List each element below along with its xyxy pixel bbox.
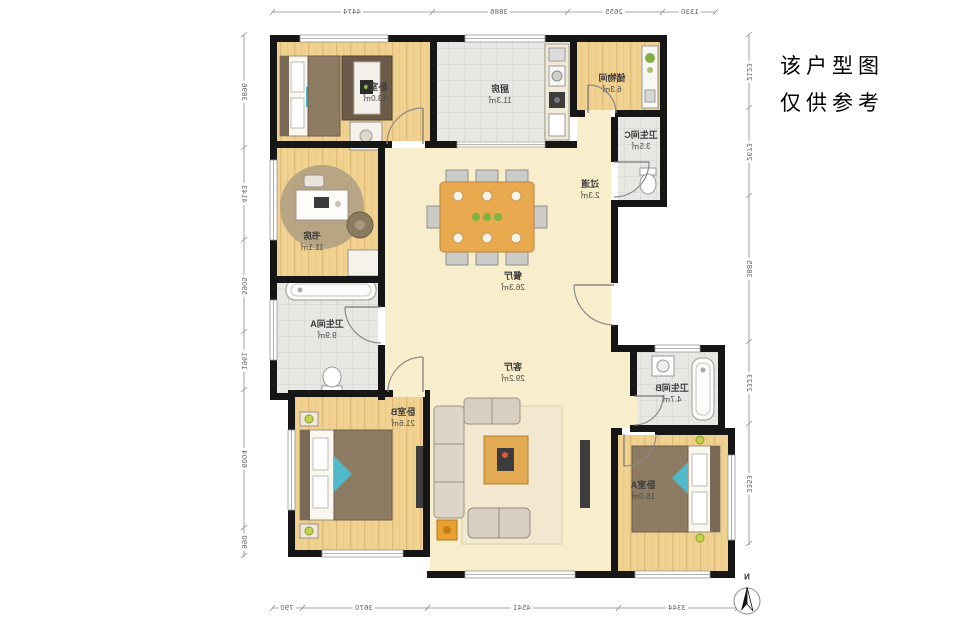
room-label-bedroomA: 卧室A15.0㎡ <box>631 480 656 502</box>
room-label-bathA: 卫生间A9.9㎡ <box>310 319 344 341</box>
dim-right-1: 2123 <box>745 61 753 83</box>
floorplan-canvas: 卧室C13.0㎡ 厨房11.3㎡ 储物间6.3㎡ 卫生间C3.5㎡ 过道2.3㎡… <box>0 0 969 623</box>
room-label-bedroomC: 卧室C13.0㎡ <box>363 82 388 104</box>
dim-right-4: 2323 <box>745 372 753 394</box>
reference-note-line2: 仅供参考 <box>780 85 940 122</box>
north-label: N <box>744 573 750 582</box>
room-label-dining: 餐厅26.3㎡ <box>501 271 525 293</box>
dim-left-2: 4143 <box>240 183 248 205</box>
dim-bottom-4: 3344 <box>666 604 688 612</box>
dim-top-2: 3886 <box>488 8 510 16</box>
room-label-storage: 储物间6.3㎡ <box>598 73 625 95</box>
dim-top-4: 1330 <box>679 8 701 16</box>
dim-bottom-2: 3670 <box>353 604 375 612</box>
room-label-living: 客厅29.2㎡ <box>501 362 525 384</box>
room-label-kitchen: 厨房11.3㎡ <box>489 84 512 106</box>
dim-right-2: 2673 <box>745 141 753 163</box>
room-label-study: 书房11.1㎡ <box>301 231 324 253</box>
dim-bottom-1: 790 <box>278 604 295 612</box>
dim-left-1: 3896 <box>240 81 248 103</box>
dim-left-4: 1961 <box>240 350 248 372</box>
reference-note-line1: 该户型图 <box>780 48 940 85</box>
room-label-bathB: 卫生间B4.7㎡ <box>655 383 689 405</box>
dim-bottom-3: 4541 <box>511 604 533 612</box>
reference-note: 该户型图 仅供参考 <box>780 48 940 122</box>
room-label-hallway: 过道2.3㎡ <box>580 179 599 201</box>
dim-right-3: 3885 <box>745 258 753 280</box>
dim-left-3: 5905 <box>240 275 248 297</box>
dim-top-3: 2655 <box>603 8 625 16</box>
compass-icon <box>734 587 760 614</box>
dim-left-6: 990 <box>240 533 248 550</box>
dim-top-1: 4474 <box>341 8 363 16</box>
room-label-bathC: 卫生间C3.5㎡ <box>624 130 658 152</box>
dim-right-5: 3353 <box>745 473 753 495</box>
dim-left-5: 6004 <box>240 448 248 470</box>
room-label-bedroomB: 卧室B21.6㎡ <box>391 407 416 429</box>
